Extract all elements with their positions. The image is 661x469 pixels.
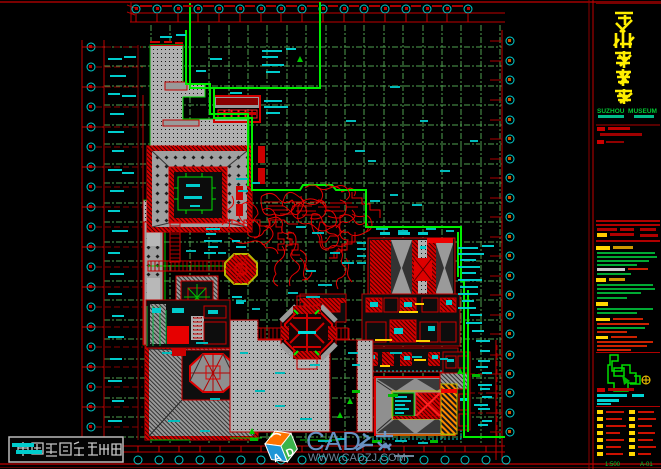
- svg-text:SUZHOU MUSEUM: SUZHOU MUSEUM: [597, 108, 657, 115]
- svg-text:WWW.CADZJ.COM: WWW.CADZJ.COM: [308, 452, 406, 464]
- svg-text:1:500: 1:500: [605, 462, 621, 468]
- svg-text:A-01: A-01: [640, 462, 653, 468]
